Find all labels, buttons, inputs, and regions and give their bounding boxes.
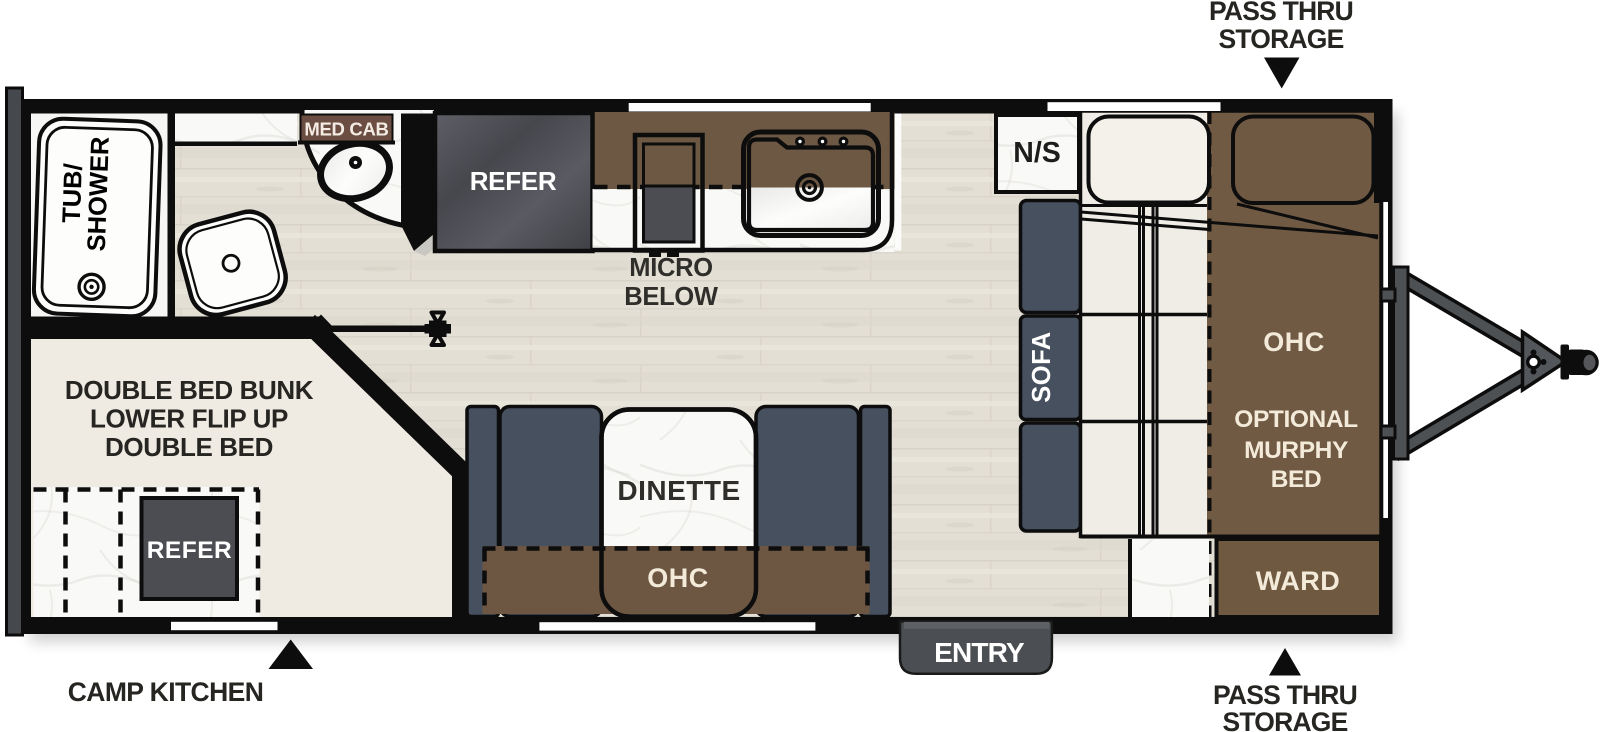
svg-text:OHC: OHC <box>1263 327 1325 357</box>
svg-text:OPTIONAL: OPTIONAL <box>1234 406 1358 433</box>
svg-text:REFER: REFER <box>470 166 557 196</box>
svg-text:MED CAB: MED CAB <box>304 119 388 140</box>
svg-text:CAMP KITCHEN: CAMP KITCHEN <box>68 677 263 707</box>
svg-text:DOUBLE BED BUNK: DOUBLE BED BUNK <box>65 375 314 405</box>
svg-text:ENTRY: ENTRY <box>934 637 1025 668</box>
svg-text:STORAGE: STORAGE <box>1219 24 1344 54</box>
svg-text:LOWER FLIP UP: LOWER FLIP UP <box>90 404 288 434</box>
svg-text:MICRO: MICRO <box>629 254 713 282</box>
svg-text:REFER: REFER <box>147 537 233 564</box>
svg-text:MURPHY: MURPHY <box>1244 437 1348 464</box>
svg-text:STORAGE: STORAGE <box>1223 707 1348 732</box>
svg-text:OHC: OHC <box>647 563 709 593</box>
svg-text:BELOW: BELOW <box>624 283 719 311</box>
svg-text:DINETTE: DINETTE <box>617 475 740 506</box>
svg-text:N/S: N/S <box>1013 137 1061 169</box>
svg-text:DOUBLE BED: DOUBLE BED <box>105 432 273 462</box>
svg-text:SOFA: SOFA <box>1028 331 1056 402</box>
svg-text:SHOWER: SHOWER <box>83 136 115 252</box>
svg-text:PASS THRU: PASS THRU <box>1209 0 1353 26</box>
svg-text:PASS THRU: PASS THRU <box>1213 680 1357 710</box>
svg-text:WARD: WARD <box>1256 566 1341 596</box>
svg-text:BED: BED <box>1271 466 1322 493</box>
